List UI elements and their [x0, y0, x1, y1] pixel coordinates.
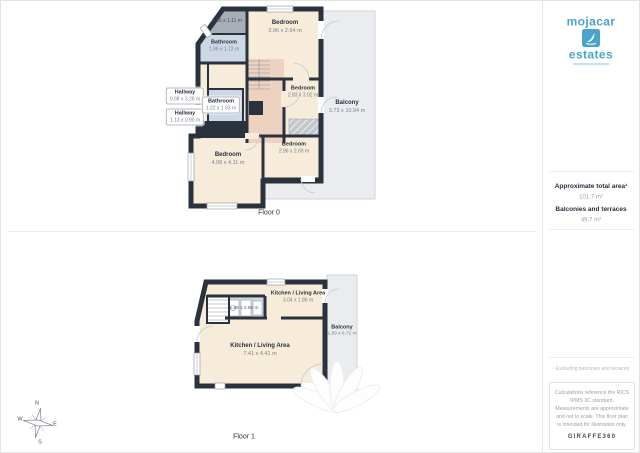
room-label-balcony-floor0: Balcony 3.73 x 10.94 m	[329, 100, 365, 114]
room-label-bedroom-mid: Bedroom 2.83 x 3.92 m	[288, 85, 318, 98]
brand-logo-icon	[582, 29, 600, 47]
room-label-bedroom-bc: Bedroom 2.96 x 2.69 m	[279, 141, 309, 154]
room-label-kitchen-strip: 1.96 x 0.86 m	[229, 306, 258, 312]
floorplan-page: 1.86 x 1.11 m Bathroom 1.96 x 1.72 m Bed…	[0, 0, 640, 453]
room-label-storage: 1.86 x 1.11 m	[212, 18, 242, 24]
compass-north-label: N	[35, 401, 39, 408]
terrace-title: Balconies and terraces	[555, 206, 626, 214]
area-title: Approximate total area¹	[555, 183, 628, 191]
floor1-label: Floor 1	[233, 434, 255, 443]
compass-west-label: W	[17, 417, 22, 424]
brand-name-top: mojacar	[567, 15, 616, 30]
sidebar-section-divider-3	[549, 357, 635, 358]
provider-logo: GIRAFFE360	[554, 434, 630, 440]
sidebar-section-divider-1	[549, 171, 635, 172]
area-footnote: ¹ Excluding balconies and terraces	[553, 366, 629, 372]
disclaimer-text: Calculations reference the RICS IPMS 3C …	[554, 389, 630, 429]
sidebar-section-divider-2	[549, 229, 635, 230]
room-label-bathroom-tl: Bathroom 1.96 x 1.72 m	[209, 39, 239, 52]
brand-name-bottom: estates	[569, 48, 613, 63]
room-label-balcony-floor1: Balcony 1.89 x 6.72 m	[327, 325, 356, 338]
floor0-label: Floor 0	[258, 210, 280, 219]
terrace-value: 49.7 m²	[581, 217, 601, 225]
room-label-bedroom-bl: Bedroom 4.08 x 4.11 m	[212, 152, 245, 166]
room-label-living-main: Kitchen / Living Area 7.41 x 4.41 m	[230, 343, 289, 357]
compass-south-label: S	[38, 440, 42, 447]
room-label-kitchen-top: Kitchen / Living Area 3.04 x 1.86 m	[271, 290, 326, 303]
room-label-hallway-1: Hallway 0.98 x 3.26 m	[166, 87, 204, 104]
room-label-bathroom-mid: Bathroom 1.22 x 1.93 m	[202, 96, 240, 113]
compass-rose	[21, 406, 56, 441]
compass-east-label: E	[53, 422, 57, 429]
floors-divider	[7, 231, 537, 232]
room-label-hallway-2: Hallway 1.13 x 0.90 m	[166, 108, 204, 125]
brand-logo-rule	[573, 64, 609, 65]
sidebar-divider	[542, 1, 543, 453]
area-value: 101.7 m²	[579, 194, 603, 202]
room-label-bedroom-top: Bedroom 3.96 x 2.94 m	[268, 20, 301, 34]
disclaimer-box: Calculations reference the RICS IPMS 3C …	[549, 382, 635, 450]
floorplan-canvas	[1, 1, 640, 453]
